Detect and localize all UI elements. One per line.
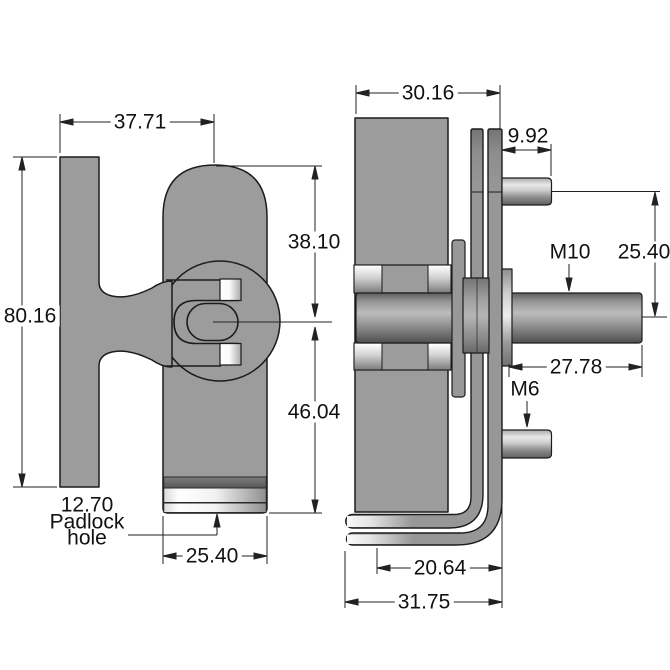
dim-bracket-inner: 20.64 bbox=[411, 558, 470, 579]
dim-lower-offset: 46.04 bbox=[285, 402, 344, 423]
dim-top-stud-length: 9.92 bbox=[505, 126, 552, 147]
dim-bracket-outer: 31.75 bbox=[395, 592, 454, 613]
label-small-thread: M6 bbox=[507, 379, 542, 400]
pin-clip-bottom bbox=[220, 344, 241, 366]
dim-overall-height: 80.16 bbox=[1, 306, 60, 327]
slot-band-bright-2 bbox=[164, 503, 266, 513]
side-view bbox=[346, 118, 642, 545]
foot-bar-highlight-upper bbox=[347, 516, 413, 527]
padlock-hole-note: 12.70 Padlock hole bbox=[50, 497, 125, 547]
knuckle-band-upper bbox=[354, 265, 451, 293]
hasp-technical-drawing bbox=[0, 0, 670, 670]
drawing-canvas: 37.71 80.16 38.10 46.04 25.40 12.70 Padl… bbox=[0, 0, 670, 670]
hinge-hub bbox=[463, 278, 489, 353]
dim-width-top: 37.71 bbox=[111, 112, 170, 133]
dim-depth: 30.16 bbox=[399, 83, 458, 104]
wall-strap bbox=[60, 157, 172, 487]
slot-band-bright-1 bbox=[164, 488, 266, 503]
foot-bar-highlight-lower bbox=[347, 535, 413, 545]
m6-stud-bottom bbox=[502, 430, 552, 458]
m6-stud-top bbox=[502, 178, 552, 205]
front-view bbox=[60, 157, 332, 513]
washer bbox=[502, 269, 512, 366]
dim-bolt-length: 27.78 bbox=[547, 357, 606, 378]
pin-clip-top bbox=[220, 279, 241, 301]
slot-band-dark bbox=[164, 477, 266, 488]
dim-upper-offset: 38.10 bbox=[285, 232, 344, 253]
knuckle-band-lower bbox=[354, 343, 451, 370]
dim-slot-width: 25.40 bbox=[183, 546, 242, 567]
dim-stud-spacing: 25.40 bbox=[615, 242, 670, 263]
label-main-thread: M10 bbox=[547, 242, 594, 263]
